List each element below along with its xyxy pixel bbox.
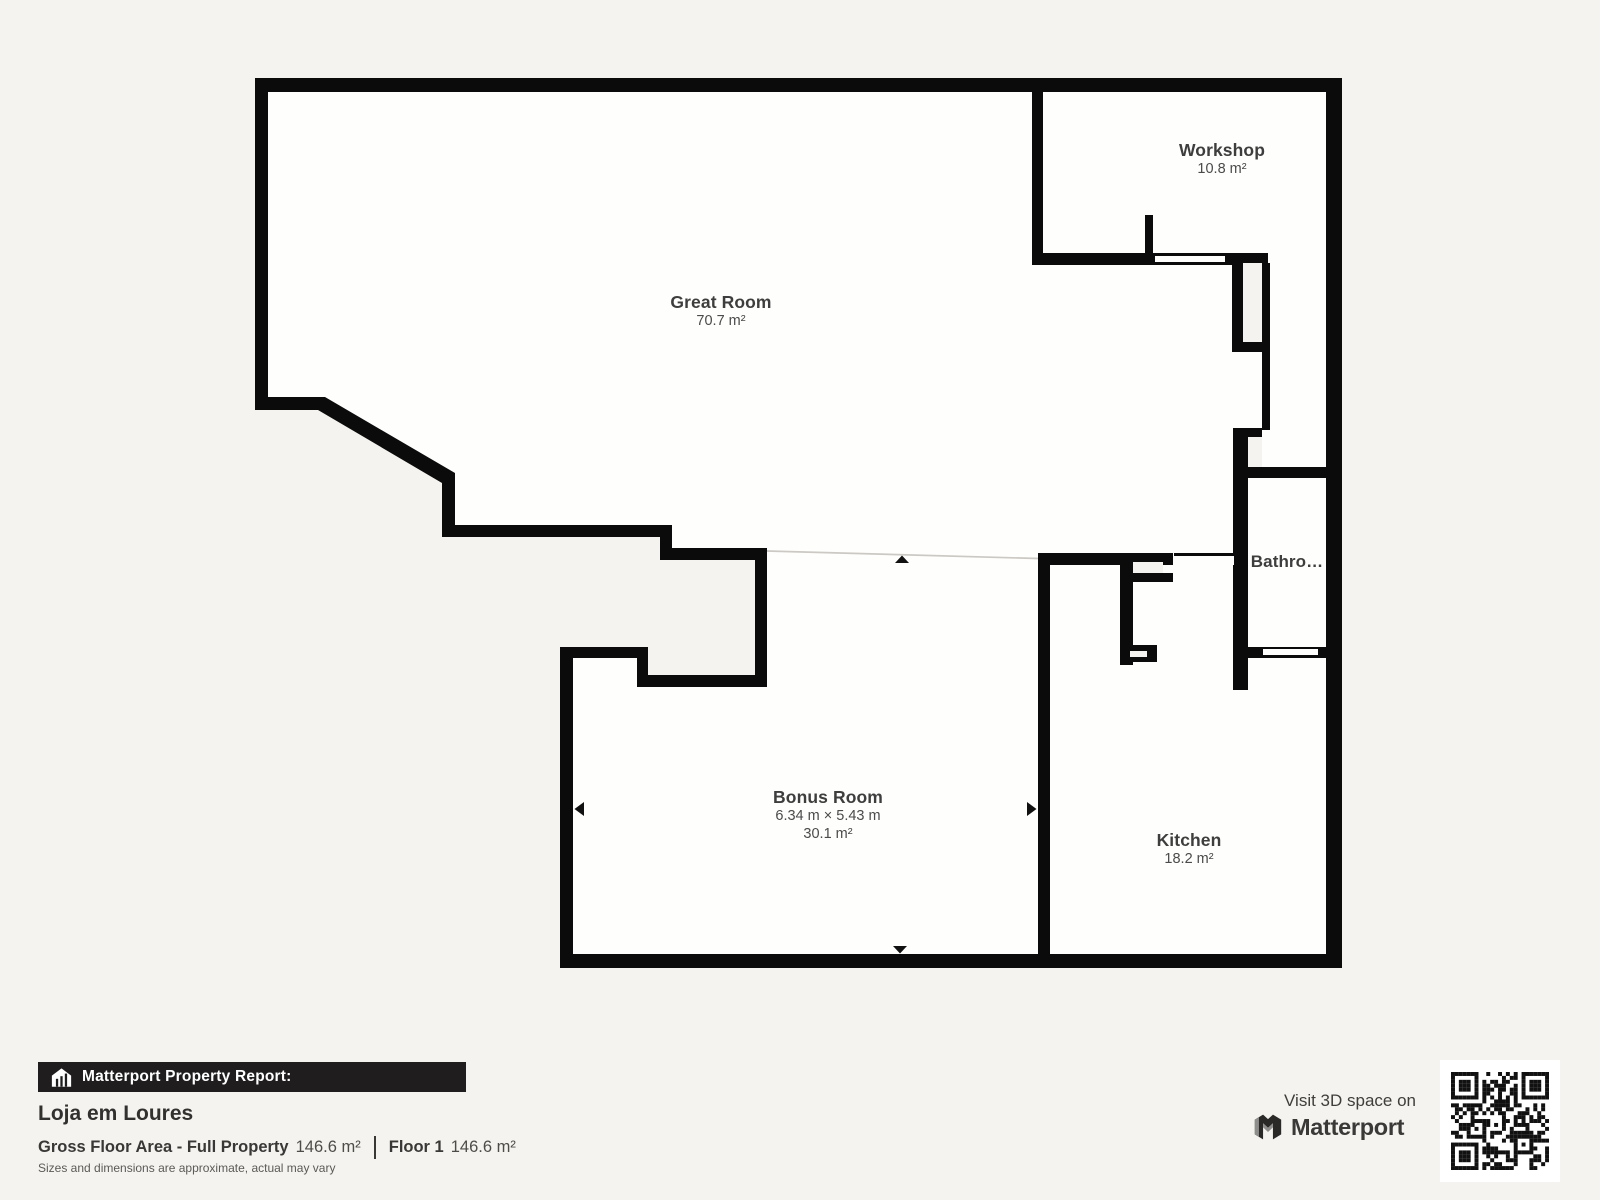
floor-value: 146.6 m² <box>451 1138 516 1157</box>
matterport-wordmark: Matterport <box>1291 1114 1404 1141</box>
property-name: Loja em Loures <box>38 1102 193 1126</box>
floor-label: Floor 1 <box>389 1138 444 1157</box>
matterport-m-icon <box>1253 1113 1283 1141</box>
wall <box>1262 263 1270 430</box>
floorplan <box>0 0 1600 1200</box>
wall <box>1130 573 1173 582</box>
room-area: 18.2 m² <box>1157 850 1222 868</box>
area-stats: Gross Floor Area - Full Property 146.6 m… <box>38 1136 516 1159</box>
room-label-workshop: Workshop 10.8 m² <box>1179 141 1265 178</box>
door-opening <box>1174 556 1234 565</box>
room-dimensions: 6.34 m × 5.43 m <box>773 807 883 825</box>
stats-divider <box>374 1136 376 1159</box>
door-opening <box>1263 649 1318 655</box>
room-name: Workshop <box>1179 141 1265 160</box>
room-name: Great Room <box>670 293 771 312</box>
house-chart-icon <box>51 1067 72 1088</box>
room-name: Bonus Room <box>773 788 883 807</box>
room-label-great-room: Great Room 70.7 m² <box>670 293 771 330</box>
room-name: Bathro… <box>1251 552 1323 571</box>
visit-3d-space-text: Visit 3D space on <box>1284 1091 1416 1111</box>
qr-code <box>1440 1060 1560 1182</box>
wall <box>1232 263 1243 352</box>
niche <box>1248 437 1262 467</box>
room-label-bonus-room: Bonus Room 6.34 m × 5.43 m 30.1 m² <box>773 788 883 843</box>
wall <box>1232 342 1263 352</box>
door-lintel <box>1174 553 1234 556</box>
wall <box>1233 467 1326 478</box>
wall <box>1145 215 1153 257</box>
niche <box>1133 562 1163 573</box>
wall <box>1032 92 1043 265</box>
door-opening <box>1155 256 1225 262</box>
report-banner: Matterport Property Report: <box>38 1062 466 1092</box>
niche <box>1130 651 1147 657</box>
gross-floor-area-label: Gross Floor Area - Full Property <box>38 1138 289 1157</box>
wall <box>1038 553 1050 968</box>
niche <box>1243 263 1262 342</box>
room-area: 10.8 m² <box>1179 160 1265 178</box>
disclaimer-text: Sizes and dimensions are approximate, ac… <box>38 1161 335 1175</box>
qr-code-pattern <box>1451 1072 1549 1170</box>
room-area: 70.7 m² <box>670 312 771 330</box>
matterport-logo: Matterport <box>1253 1113 1404 1141</box>
matterport-floorplan-report: Great Room 70.7 m² Workshop 10.8 m² Bath… <box>0 0 1600 1200</box>
room-label-kitchen: Kitchen 18.2 m² <box>1157 831 1222 868</box>
room-area: 30.1 m² <box>773 825 883 843</box>
gross-floor-area-value: 146.6 m² <box>296 1138 361 1157</box>
room-label-bathroom: Bathro… <box>1251 552 1323 571</box>
room-name: Kitchen <box>1157 831 1222 850</box>
report-banner-label: Matterport Property Report: <box>82 1068 292 1086</box>
